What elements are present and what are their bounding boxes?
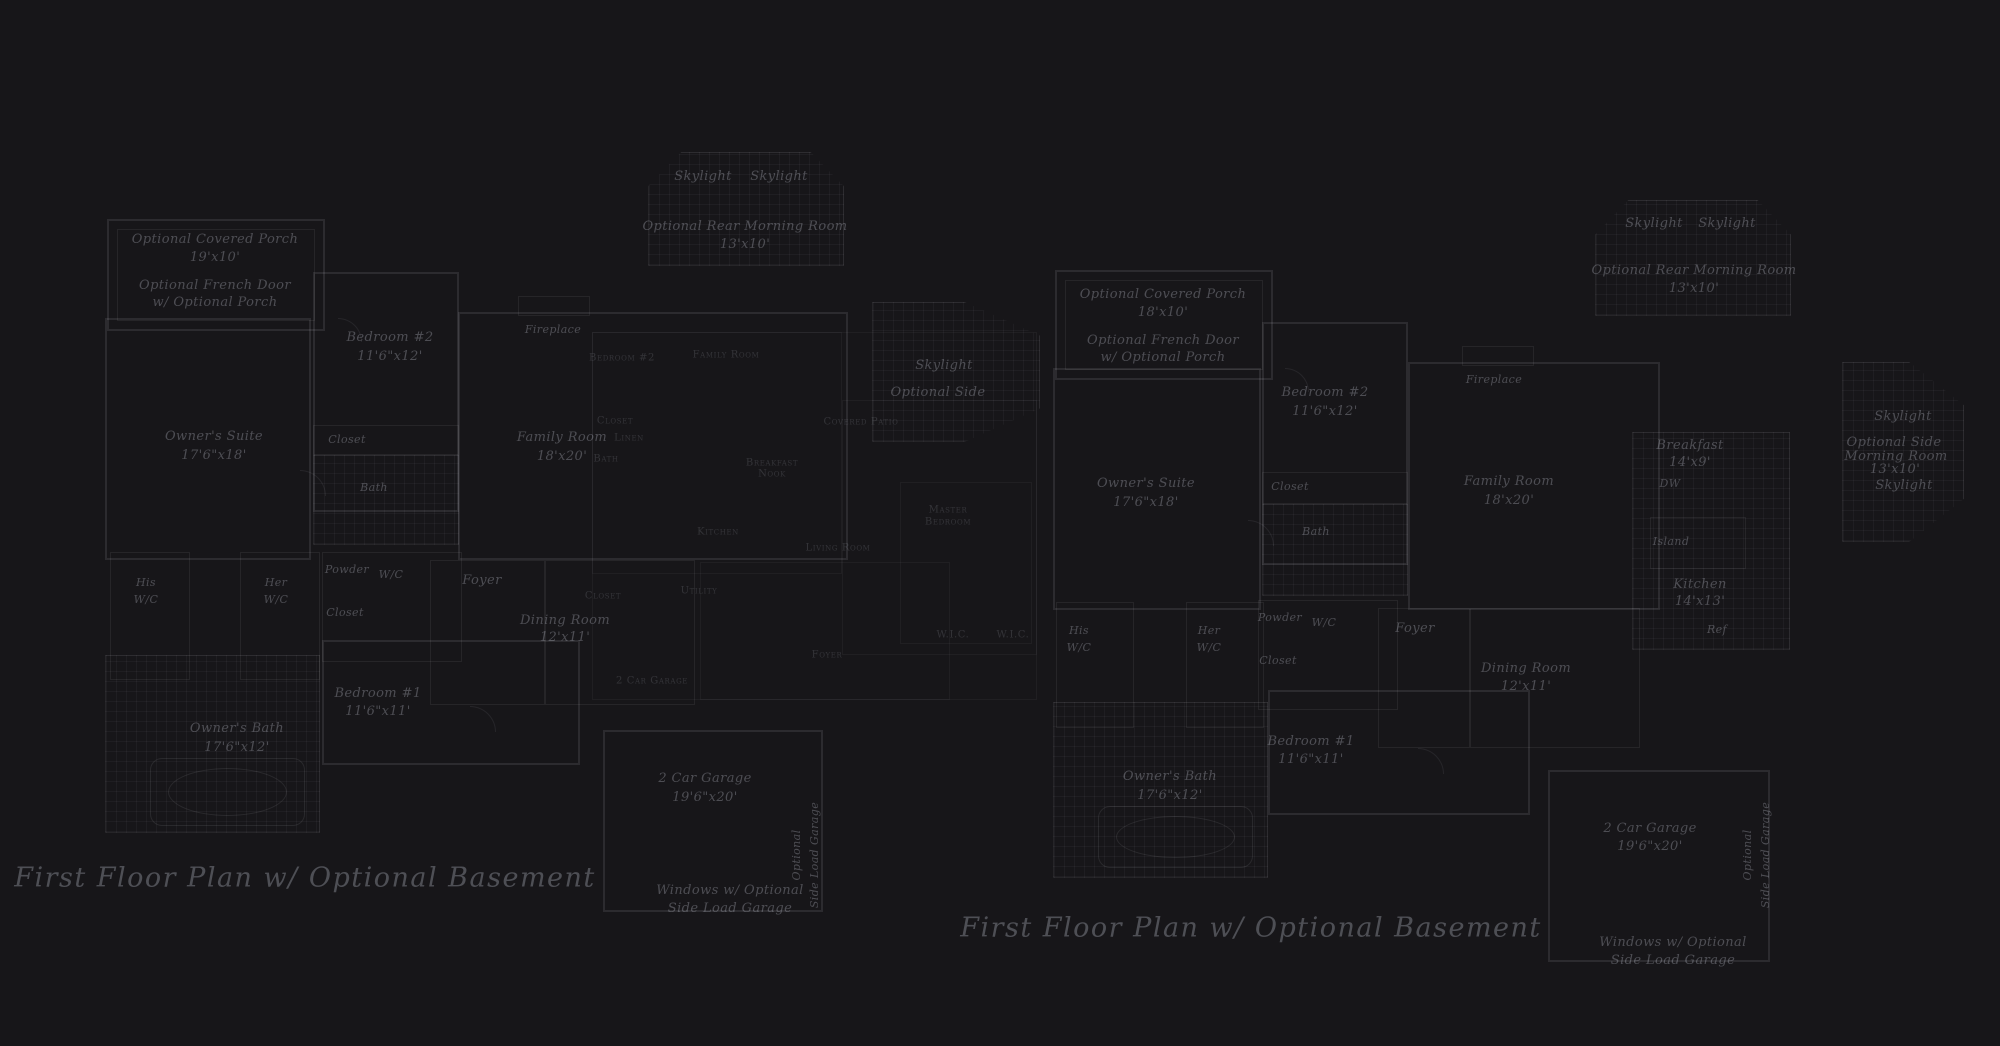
room-label: Closet: [328, 434, 366, 446]
room-label: Foyer: [1395, 622, 1434, 636]
room-label: W/C: [379, 569, 404, 581]
room-label: Side Load Garage: [1760, 802, 1772, 908]
room-label: 18'x20': [1484, 494, 1534, 508]
room-label: W/C: [1197, 642, 1222, 654]
room-label: Foyer: [812, 650, 843, 661]
room-label: 11'6"x12': [357, 350, 422, 364]
room-label: Family Room: [1464, 475, 1554, 489]
room-label: Nook: [758, 469, 786, 480]
room-label: Dining Room: [1481, 662, 1571, 676]
room-label: W/C: [1067, 642, 1092, 654]
room-label: 14'x9': [1669, 456, 1711, 470]
room-label: Her: [265, 577, 288, 589]
room-label: Fireplace: [525, 324, 581, 336]
room-label: Skylight: [915, 359, 973, 373]
room-label: Covered Patio: [824, 417, 899, 428]
room-label: Optional Covered Porch: [1080, 288, 1247, 302]
room-label: Dining Room: [520, 614, 610, 628]
room-label: 17'6"x12': [204, 741, 269, 755]
room-label: W/C: [1312, 617, 1337, 629]
room-label: Closet: [326, 607, 364, 619]
tiled-room-outline: [313, 455, 459, 545]
room-outline: [700, 562, 950, 700]
room-label: Master: [929, 505, 968, 516]
room-label: 13'x10': [1669, 282, 1719, 296]
room-label: Owner's Bath: [190, 722, 284, 736]
room-label: DW: [1660, 478, 1681, 490]
room-label: Family Room: [693, 350, 760, 361]
room-label: 12'x11': [540, 631, 590, 645]
room-label: Bath: [593, 454, 618, 465]
room-label: 11'6"x11': [345, 705, 410, 719]
room-label: Bedroom #2: [1281, 386, 1368, 400]
room-label: W.I.C.: [997, 630, 1030, 641]
room-label: Powder: [325, 564, 369, 576]
room-label: Closet: [1271, 481, 1309, 493]
room-label: Skylight: [1874, 410, 1932, 424]
room-label: 18'x20': [537, 450, 587, 464]
room-label: 14'x13': [1675, 595, 1725, 609]
room-label: Skylight: [1698, 217, 1756, 231]
floor-plan-sheet: Optional Covered Porch19'x10'Optional Fr…: [0, 0, 2000, 1046]
room-label: Optional: [1742, 830, 1754, 881]
room-label: Kitchen: [1673, 578, 1727, 592]
room-label: 2 Car Garage: [658, 772, 751, 786]
room-label: Bath: [360, 482, 388, 494]
room-label: Breakfast: [746, 458, 798, 469]
room-label: Side Load Garage: [668, 902, 792, 916]
room-label: Island: [1653, 536, 1690, 548]
room-label: Closet: [1259, 655, 1297, 667]
plan-caption-right: First Floor Plan w/ Optional Basement: [960, 913, 1542, 944]
room-label: Side Load Garage: [1611, 954, 1735, 968]
room-label: 2 Car Garage: [1603, 822, 1696, 836]
room-label: Skylight: [750, 170, 808, 184]
room-label: 19'6"x20': [672, 791, 737, 805]
room-label: Kitchen: [697, 527, 739, 538]
room-label: Bedroom #1: [1267, 735, 1354, 749]
room-label: Bath: [1302, 526, 1330, 538]
room-label: Owner's Suite: [165, 430, 263, 444]
room-outline: [1548, 770, 1770, 962]
room-label: Optional Covered Porch: [132, 233, 299, 247]
room-label: 18'x10': [1138, 306, 1188, 320]
room-label: Closet: [585, 591, 621, 602]
room-label: Bedroom: [925, 517, 971, 528]
room-label: Optional French Door: [139, 279, 291, 293]
room-label: Windows w/ Optional: [656, 884, 803, 898]
room-label: W.I.C.: [937, 630, 970, 641]
room-outline: [518, 296, 590, 316]
room-label: His: [1069, 625, 1089, 637]
room-label: Family Room: [517, 431, 607, 445]
room-label: Optional Rear Morning Room: [642, 220, 847, 234]
room-label: Breakfast: [1656, 439, 1723, 453]
room-label: 13'x10': [1870, 463, 1920, 477]
room-label: Closet: [597, 416, 633, 427]
room-label: Optional Rear Morning Room: [1591, 264, 1796, 278]
room-label: Her: [1198, 625, 1221, 637]
room-label: w/ Optional Porch: [153, 296, 278, 310]
room-label: Powder: [1258, 612, 1302, 624]
room-label: Optional French Door: [1087, 334, 1239, 348]
room-label: 13'x10': [720, 238, 770, 252]
room-outline: [592, 332, 842, 574]
room-label: w/ Optional Porch: [1101, 351, 1226, 365]
room-label: Windows w/ Optional: [1599, 936, 1746, 950]
room-label: 19'6"x20': [1617, 840, 1682, 854]
room-outline: [322, 640, 580, 765]
room-label: 17'6"x18': [1113, 496, 1178, 510]
room-label: Bedroom #2: [346, 331, 433, 345]
bathtub-outline: [1116, 816, 1235, 858]
room-label: Side Load Garage: [809, 802, 821, 908]
room-label: Owner's Bath: [1123, 770, 1217, 784]
room-label: Bedroom #2: [589, 353, 655, 364]
bathtub-outline: [168, 768, 287, 816]
room-label: Linen: [614, 433, 644, 444]
room-label: Skylight: [1625, 217, 1683, 231]
room-label: 19'x10': [190, 251, 240, 265]
room-label: His: [136, 577, 156, 589]
room-label: 2 Car Garage: [616, 676, 688, 687]
room-label: 17'6"x18': [181, 449, 246, 463]
room-label: Living Room: [806, 543, 871, 554]
room-label: Bedroom #1: [334, 687, 421, 701]
room-label: 17'6"x12': [1137, 789, 1202, 803]
room-label: W/C: [134, 594, 159, 606]
room-label: Fireplace: [1466, 374, 1522, 386]
room-label: 12'x11': [1501, 680, 1551, 694]
room-label: 11'6"x12': [1292, 405, 1357, 419]
room-label: 11'6"x11': [1278, 753, 1343, 767]
room-label: Skylight: [674, 170, 732, 184]
tiled-room-outline: [1262, 504, 1408, 596]
room-label: Optional Side: [891, 386, 986, 400]
room-label: W/C: [264, 594, 289, 606]
room-label: Foyer: [462, 574, 501, 588]
room-label: Owner's Suite: [1097, 477, 1195, 491]
room-label: Skylight: [1875, 479, 1933, 493]
room-label: Utility: [681, 586, 718, 597]
room-label: Optional: [791, 830, 803, 881]
room-label: Ref: [1707, 624, 1727, 636]
room-outline: [1462, 346, 1534, 366]
plan-caption-left: First Floor Plan w/ Optional Basement: [14, 863, 596, 894]
